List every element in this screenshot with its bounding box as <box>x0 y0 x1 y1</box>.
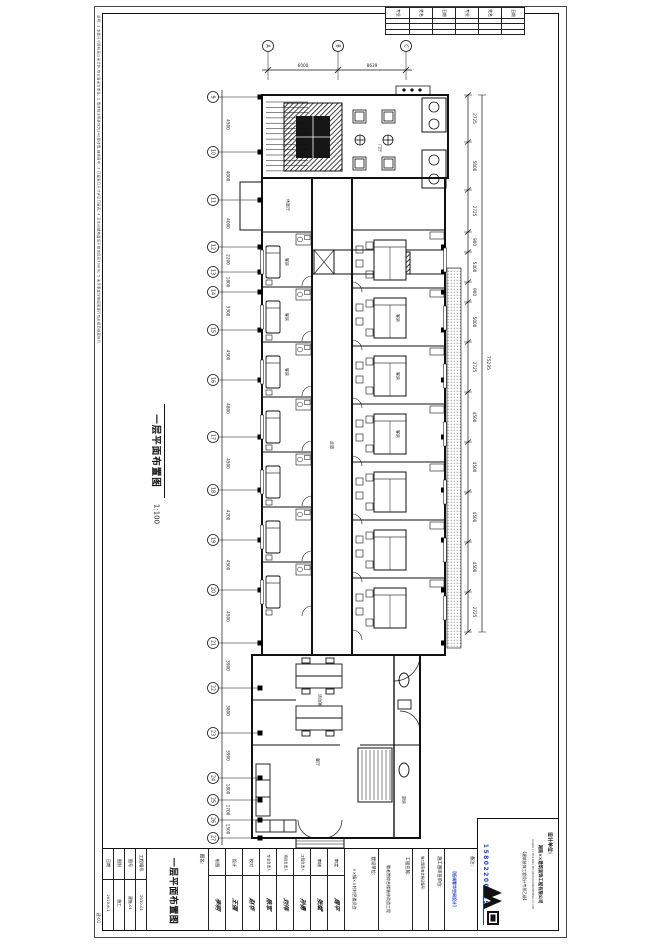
svg-text:6000: 6000 <box>298 63 309 68</box>
svg-text:4500: 4500 <box>472 412 477 423</box>
svg-text:4500: 4500 <box>226 560 231 571</box>
signature-role: 制图 <box>214 859 218 867</box>
field-divider <box>113 849 114 930</box>
field-value: 建施-01 <box>128 896 132 910</box>
rfield-divider <box>444 849 445 930</box>
svg-text:25: 25 <box>209 797 215 803</box>
room-label: 客房 <box>285 258 291 266</box>
sig-divider <box>310 849 311 930</box>
design-unit-company-en: HUNAN ×× BUILDING DECORATION ENGINEERING… <box>531 839 533 909</box>
field-label: 图别 <box>116 859 120 867</box>
svg-text:5000: 5000 <box>472 161 477 172</box>
svg-text:20: 20 <box>209 587 215 593</box>
field-value: 2010-6-1 <box>106 894 110 911</box>
svg-text:1500: 1500 <box>226 824 231 835</box>
room-label: 客房 <box>396 430 402 438</box>
signature-name: 张斌 <box>316 897 322 911</box>
field-split <box>102 879 146 880</box>
room-label: 走道 <box>330 441 336 449</box>
rfield-label: 建设单位: <box>370 856 374 875</box>
svg-text:5400: 5400 <box>472 262 477 273</box>
lobby-furniture <box>353 86 446 188</box>
svg-text:2725: 2725 <box>472 206 477 217</box>
svg-text:2725: 2725 <box>472 607 477 618</box>
svg-text:3900: 3900 <box>226 660 231 671</box>
svg-text:16: 16 <box>209 377 215 383</box>
signature-role: 专业负责人 <box>266 855 269 872</box>
svg-text:3800: 3800 <box>226 705 231 716</box>
design-unit-qualification: 【建筑装饰工程设计专项乙级】 <box>522 849 526 902</box>
signature-name: 周平 <box>333 897 339 911</box>
sig-divider <box>242 849 243 930</box>
svg-text:1800: 1800 <box>226 277 231 288</box>
room-label: 餐厅 <box>316 758 322 766</box>
svg-text:2200: 2200 <box>226 254 231 265</box>
svg-text:4500: 4500 <box>226 458 231 469</box>
room-label: 客房 <box>396 372 402 380</box>
right-region-left <box>344 849 345 930</box>
svg-text:4500: 4500 <box>472 562 477 573</box>
name-cell-left <box>146 849 147 930</box>
design-unit-label: 设计单位: <box>547 832 552 854</box>
svg-text:14: 14 <box>209 289 215 295</box>
svg-text:3900: 3900 <box>226 750 231 761</box>
signature-role: 审核 <box>316 859 320 867</box>
field-value: 施工 <box>117 899 121 907</box>
svg-text:4800: 4800 <box>226 403 231 414</box>
room-label: 活动室 <box>318 694 324 706</box>
svg-text:21: 21 <box>209 640 215 646</box>
rfield-value: 敬老院综合楼装修改造工程 <box>386 865 390 913</box>
sig-divider <box>225 849 226 930</box>
signature-role: 项目负责人 <box>283 855 286 872</box>
room-label: 门厅 <box>378 144 384 152</box>
drawing-name-label: 图名: <box>198 854 203 865</box>
signature-role: 设计 <box>231 859 235 867</box>
svg-text:4500: 4500 <box>472 462 477 473</box>
signature-name: 陈军 <box>265 897 271 911</box>
signature-role: 工程负责人 <box>300 855 303 872</box>
svg-text:1700: 1700 <box>226 805 231 816</box>
sig-region-left <box>208 849 209 930</box>
rfield-label: 施工图审查单位: <box>436 856 440 888</box>
room-label: 客房 <box>285 368 291 376</box>
svg-text:27: 27 <box>209 835 215 841</box>
rfield-divider <box>428 849 429 930</box>
svg-text:4200: 4200 <box>226 510 231 521</box>
svg-text:22: 22 <box>209 685 215 691</box>
svg-text:1800: 1800 <box>226 784 231 795</box>
sig-divider <box>293 849 294 930</box>
svg-text:900: 900 <box>472 238 477 246</box>
svg-text:75235: 75235 <box>485 356 491 370</box>
svg-text:2725: 2725 <box>472 113 477 124</box>
svg-text:9: 9 <box>209 95 215 98</box>
field-label: 日期 <box>105 859 109 867</box>
rfield-label: 施工图审查合格证编号: <box>420 856 423 890</box>
svg-text:19: 19 <box>209 537 215 543</box>
svg-text:4500: 4500 <box>226 119 231 130</box>
svg-text:4500: 4500 <box>226 611 231 622</box>
room-label: 厨房 <box>402 796 408 804</box>
signature-name: 刘伟 <box>282 897 288 911</box>
room-label: 客房 <box>285 313 291 321</box>
room-label: 客房 <box>396 314 402 322</box>
signature-role: 校对 <box>248 859 252 867</box>
svg-text:24: 24 <box>209 775 215 781</box>
svg-text:23: 23 <box>209 730 215 736</box>
signature-name: 李明 <box>214 897 220 911</box>
signature-name: 孙勇 <box>299 897 305 911</box>
room-label: 休息厅 <box>286 199 292 211</box>
signature-role: 审定 <box>333 859 337 867</box>
sig-divider <box>276 849 277 930</box>
signature-name: 赵华 <box>248 897 254 911</box>
rfield-value: ××镇××村村民委员会 <box>352 868 356 909</box>
svg-text:5000: 5000 <box>472 317 477 328</box>
svg-text:8639: 8639 <box>367 63 378 68</box>
drawing-name: 一层平面布置图 <box>168 858 177 925</box>
rfield-label: 工程名称: <box>404 856 408 875</box>
floor-plan: 9101112131415161718192021222324252627450… <box>0 0 660 944</box>
svg-text:3300: 3300 <box>226 306 231 317</box>
svg-text:15: 15 <box>209 327 215 333</box>
sig-divider <box>259 849 260 930</box>
field-label: 图号 <box>127 859 131 867</box>
design-unit-company: 湖南××建筑装饰工程有限公司 <box>537 845 541 904</box>
design-unit-block: 设计单位:湖南××建筑装饰工程有限公司HUNAN ×× BUILDING DEC… <box>477 818 559 931</box>
svg-text:2725: 2725 <box>472 362 477 373</box>
svg-text:13: 13 <box>209 269 215 275</box>
svg-text:18: 18 <box>209 487 215 493</box>
lower-furniture <box>256 655 420 848</box>
field-label: 工程编号 <box>138 855 142 872</box>
svg-text:11: 11 <box>209 197 215 203</box>
drawing-sheet: 说明: 1.本图尺寸除标高以米计外,均以毫米为单位; 2.墙体除注明外均为240… <box>0 0 660 944</box>
rfield-value: 【低调奢华空间设计】 <box>452 869 456 909</box>
title-block: 日期2010-6-1图别施工图号建施-01工程编号2010-01图名:一层平面布… <box>102 848 477 930</box>
svg-text:900: 900 <box>472 288 477 296</box>
field-divider <box>135 849 136 930</box>
svg-text:10: 10 <box>209 149 215 155</box>
svg-text:B: B <box>334 44 340 47</box>
field-divider <box>124 849 125 930</box>
signature-name: 王强 <box>231 897 237 911</box>
rfield-divider <box>412 849 413 930</box>
svg-text:4000: 4000 <box>226 171 231 182</box>
sig-split <box>208 875 344 876</box>
svg-text:4500: 4500 <box>226 350 231 361</box>
svg-text:12: 12 <box>209 244 215 250</box>
svg-text:17: 17 <box>209 434 215 440</box>
rfield-divider <box>378 849 379 930</box>
field-value: 2010-01 <box>139 895 143 911</box>
svg-text:4500: 4500 <box>472 512 477 523</box>
svg-text:26: 26 <box>209 817 215 823</box>
sig-divider <box>327 849 328 930</box>
svg-text:4000: 4000 <box>226 218 231 229</box>
rfield-label: 备注: <box>469 856 473 866</box>
